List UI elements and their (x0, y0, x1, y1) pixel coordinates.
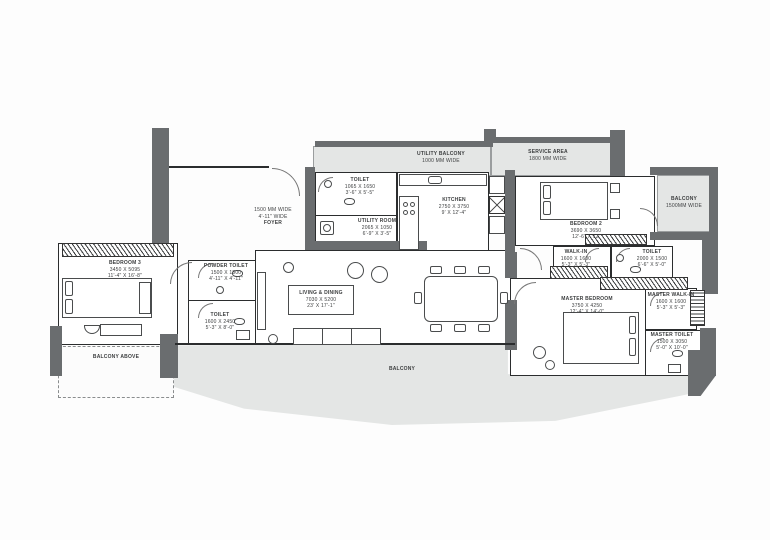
balcony-right-label: BALCONY 1500MM WIDE (658, 196, 710, 209)
master-toilet-label: MASTER TOILET 1500 X 3050 5'-0" X 10'-0" (644, 332, 700, 352)
pillow-icon (629, 338, 636, 356)
room-name: BALCONY ABOVE (68, 354, 164, 361)
room-name: MASTER TOILET (644, 332, 700, 339)
wall-segment (650, 232, 718, 240)
room-dims-ft: 11'-4" X 16'-8" (85, 273, 165, 280)
room-name: LIVING & DINING (291, 290, 351, 297)
room-name: POWDER TOILET (203, 263, 249, 270)
door-swing (520, 248, 542, 270)
balcony-above-label: BALCONY ABOVE (68, 354, 164, 361)
wall-segment (688, 350, 716, 396)
wall-segment (505, 252, 517, 278)
wall-segment (650, 167, 718, 175)
sink-icon (216, 286, 224, 294)
pouf-icon (268, 334, 278, 344)
bedroom2-label: BEDROOM 2 3690 X 3650 12'-6" X 12' (556, 221, 616, 241)
stove-burner-icon (403, 210, 408, 215)
wall-segment (709, 170, 718, 238)
armchair-icon (347, 262, 364, 279)
stove-burner-icon (410, 210, 415, 215)
bed-icon (563, 312, 639, 364)
wall-segment (152, 128, 169, 246)
room-name: FOYER (244, 220, 302, 227)
pillow-icon (543, 185, 551, 199)
dresser-icon (100, 324, 142, 336)
walk-in-label: WALK-IN 1600 X 1600 5'-3" X 5'-3" (553, 249, 599, 269)
chair-icon (430, 324, 442, 332)
room-width: 1000 MM WIDE (394, 158, 488, 165)
stove-burner-icon (403, 202, 408, 207)
room-dims-ft: 9' X 12'-4" (428, 210, 480, 217)
door-swing (640, 208, 658, 226)
chair-icon (430, 266, 442, 274)
refrigerator-icon (489, 176, 505, 194)
room-dims-ft: 5'-3" X 8'-0" (192, 325, 248, 332)
room-dims-ft: 12'-6" X 12' (556, 234, 616, 241)
wardrobe-hatch (600, 277, 688, 290)
room-width: 1800 MM WIDE (500, 156, 596, 163)
room-dims-ft: 5'-0" X 10'-0" (644, 345, 700, 352)
side-table-icon (283, 262, 294, 273)
kitchen-label: KITCHEN 2750 X 3750 9' X 12'-4" (428, 197, 480, 217)
room-name: BALCONY (372, 366, 432, 373)
room-dims-ft: 6'-6" X 5'-0" (631, 262, 673, 269)
toilet-right-label: TOILET 2000 X 1500 6'-6" X 5'-0" (631, 249, 673, 269)
room-width: 1500MM WIDE (658, 203, 710, 210)
room-dims-ft: 6'-9" X 3'-5" (348, 231, 406, 238)
master-bedroom-label: MASTER BEDROOM 3750 X 4250 12'-4" X 14'-… (548, 296, 626, 316)
bench-icon (139, 282, 151, 314)
chair-icon (478, 324, 490, 332)
room-dims-ft: 23' X 17'-1" (291, 303, 351, 310)
utility-room-label: UTILITY ROOM 2065 X 1050 6'-9" X 3'-5" (348, 218, 406, 238)
pillow-icon (543, 201, 551, 215)
room-dims-ft: 5'-3" X 5'-3" (647, 305, 695, 312)
wall-segment (305, 167, 315, 247)
sofa-icon (293, 328, 381, 345)
bedroom3-label: BEDROOM 3 3450 X 5095 11'-4" X 16'-8" (85, 260, 165, 280)
floor-plan: BEDROOM 3 3450 X 5095 11'-4" X 16'-8" BA… (0, 0, 770, 540)
shower-icon (668, 364, 681, 373)
wall-segment (610, 130, 625, 176)
boundary-line (169, 166, 269, 168)
wall-segment (484, 129, 496, 142)
pillow-icon (65, 281, 73, 296)
tv-unit-icon (257, 272, 266, 330)
service-area-label: SERVICE AREA 1800 MM WIDE (500, 149, 596, 162)
pillow-icon (629, 316, 636, 334)
wall-segment (505, 170, 515, 252)
pouf-icon (545, 360, 555, 370)
foyer-label: 1500 MM WIDE 4'-11" WIDE FOYER (244, 207, 302, 227)
dining-table-icon (424, 276, 498, 322)
toilet-top-label: TOILET 1065 X 1650 3'-6" X 5'-5" (332, 177, 388, 197)
sink-icon (428, 176, 442, 184)
stove-burner-icon (410, 202, 415, 207)
chair-icon (454, 324, 466, 332)
room-name: MASTER WALK-IN (647, 292, 695, 299)
pillow-icon (65, 299, 73, 314)
pouf-icon (533, 346, 546, 359)
chair-icon (454, 266, 466, 274)
room-dims-ft: 3'-6" X 5'-5" (332, 190, 388, 197)
wall-segment (702, 240, 718, 294)
nightstand-icon (610, 209, 620, 219)
room-dims-ft: 12'-4" X 14'-0" (548, 309, 626, 316)
appliance-icon (489, 216, 505, 234)
wc-icon (344, 198, 355, 205)
wall-segment (491, 137, 613, 143)
kitchen-counter (399, 174, 487, 186)
powder-toilet-label: POWDER TOILET 1500 X 1500 4'-11" X 4'-11… (203, 263, 249, 283)
utility-balcony-label: UTILITY BALCONY 1000 MM WIDE (394, 151, 488, 164)
shower-icon (236, 330, 250, 340)
sink-icon (324, 180, 332, 188)
main-balcony-label: BALCONY (372, 366, 432, 373)
duct-shaft-icon (489, 196, 505, 214)
toilet-left-label: TOILET 1600 X 2450 5'-3" X 8'-0" (192, 312, 248, 332)
nightstand-icon (610, 183, 620, 193)
chair-icon (500, 292, 508, 304)
chair-icon (414, 292, 422, 304)
master-walk-in-label: MASTER WALK-IN 1600 X 1600 5'-3" X 5'-3" (647, 292, 695, 312)
sink-icon (616, 254, 624, 262)
living-dining-label: LIVING & DINING 7030 X 5200 23' X 17'-1" (288, 285, 354, 315)
room-dims-ft: 4'-11" X 4'-11" (203, 276, 249, 283)
washing-machine-drum-icon (323, 224, 331, 232)
door-swing (272, 168, 300, 196)
chair-icon (478, 266, 490, 274)
wall-segment (50, 326, 62, 376)
armchair-icon (371, 266, 388, 283)
wall-segment (315, 141, 493, 147)
hatch-wall (62, 243, 174, 257)
room-dims-ft: 5'-3" X 5'-3" (553, 262, 599, 269)
